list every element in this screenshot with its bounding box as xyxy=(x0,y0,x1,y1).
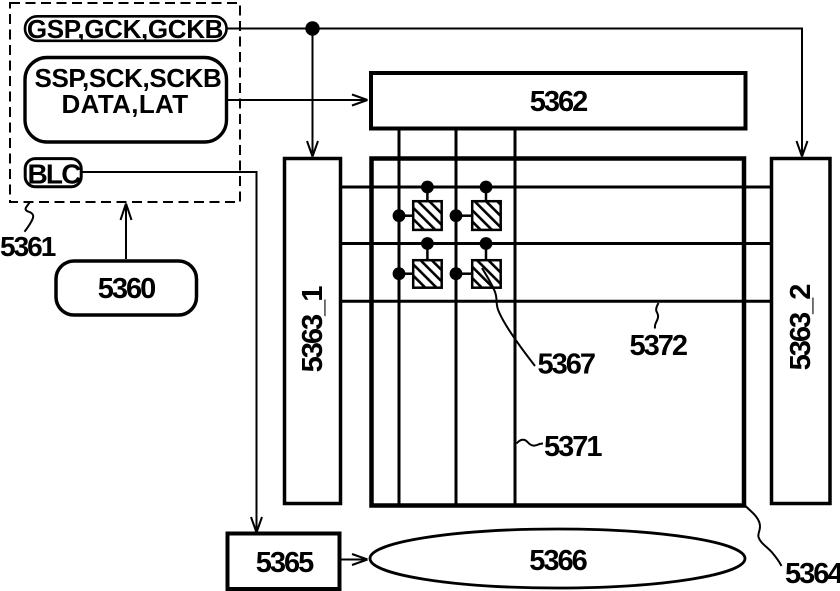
svg-text:5364: 5364 xyxy=(785,558,840,590)
svg-text:BLC: BLC xyxy=(28,159,82,190)
svg-text:5371: 5371 xyxy=(544,431,602,463)
svg-text:DATA,LAT: DATA,LAT xyxy=(62,89,189,119)
svg-text:5366: 5366 xyxy=(529,545,587,577)
svg-text:5365: 5365 xyxy=(256,547,314,579)
svg-text:5362: 5362 xyxy=(530,86,587,118)
svg-text:GSP,GCK,GCKB: GSP,GCK,GCKB xyxy=(27,14,223,44)
svg-text:5363_1: 5363_1 xyxy=(297,286,329,373)
svg-text:5361: 5361 xyxy=(0,231,56,262)
svg-text:5372: 5372 xyxy=(630,330,687,362)
svg-text:5367: 5367 xyxy=(538,349,595,381)
svg-text:5360: 5360 xyxy=(98,273,155,305)
svg-text:5363_2: 5363_2 xyxy=(785,285,817,371)
